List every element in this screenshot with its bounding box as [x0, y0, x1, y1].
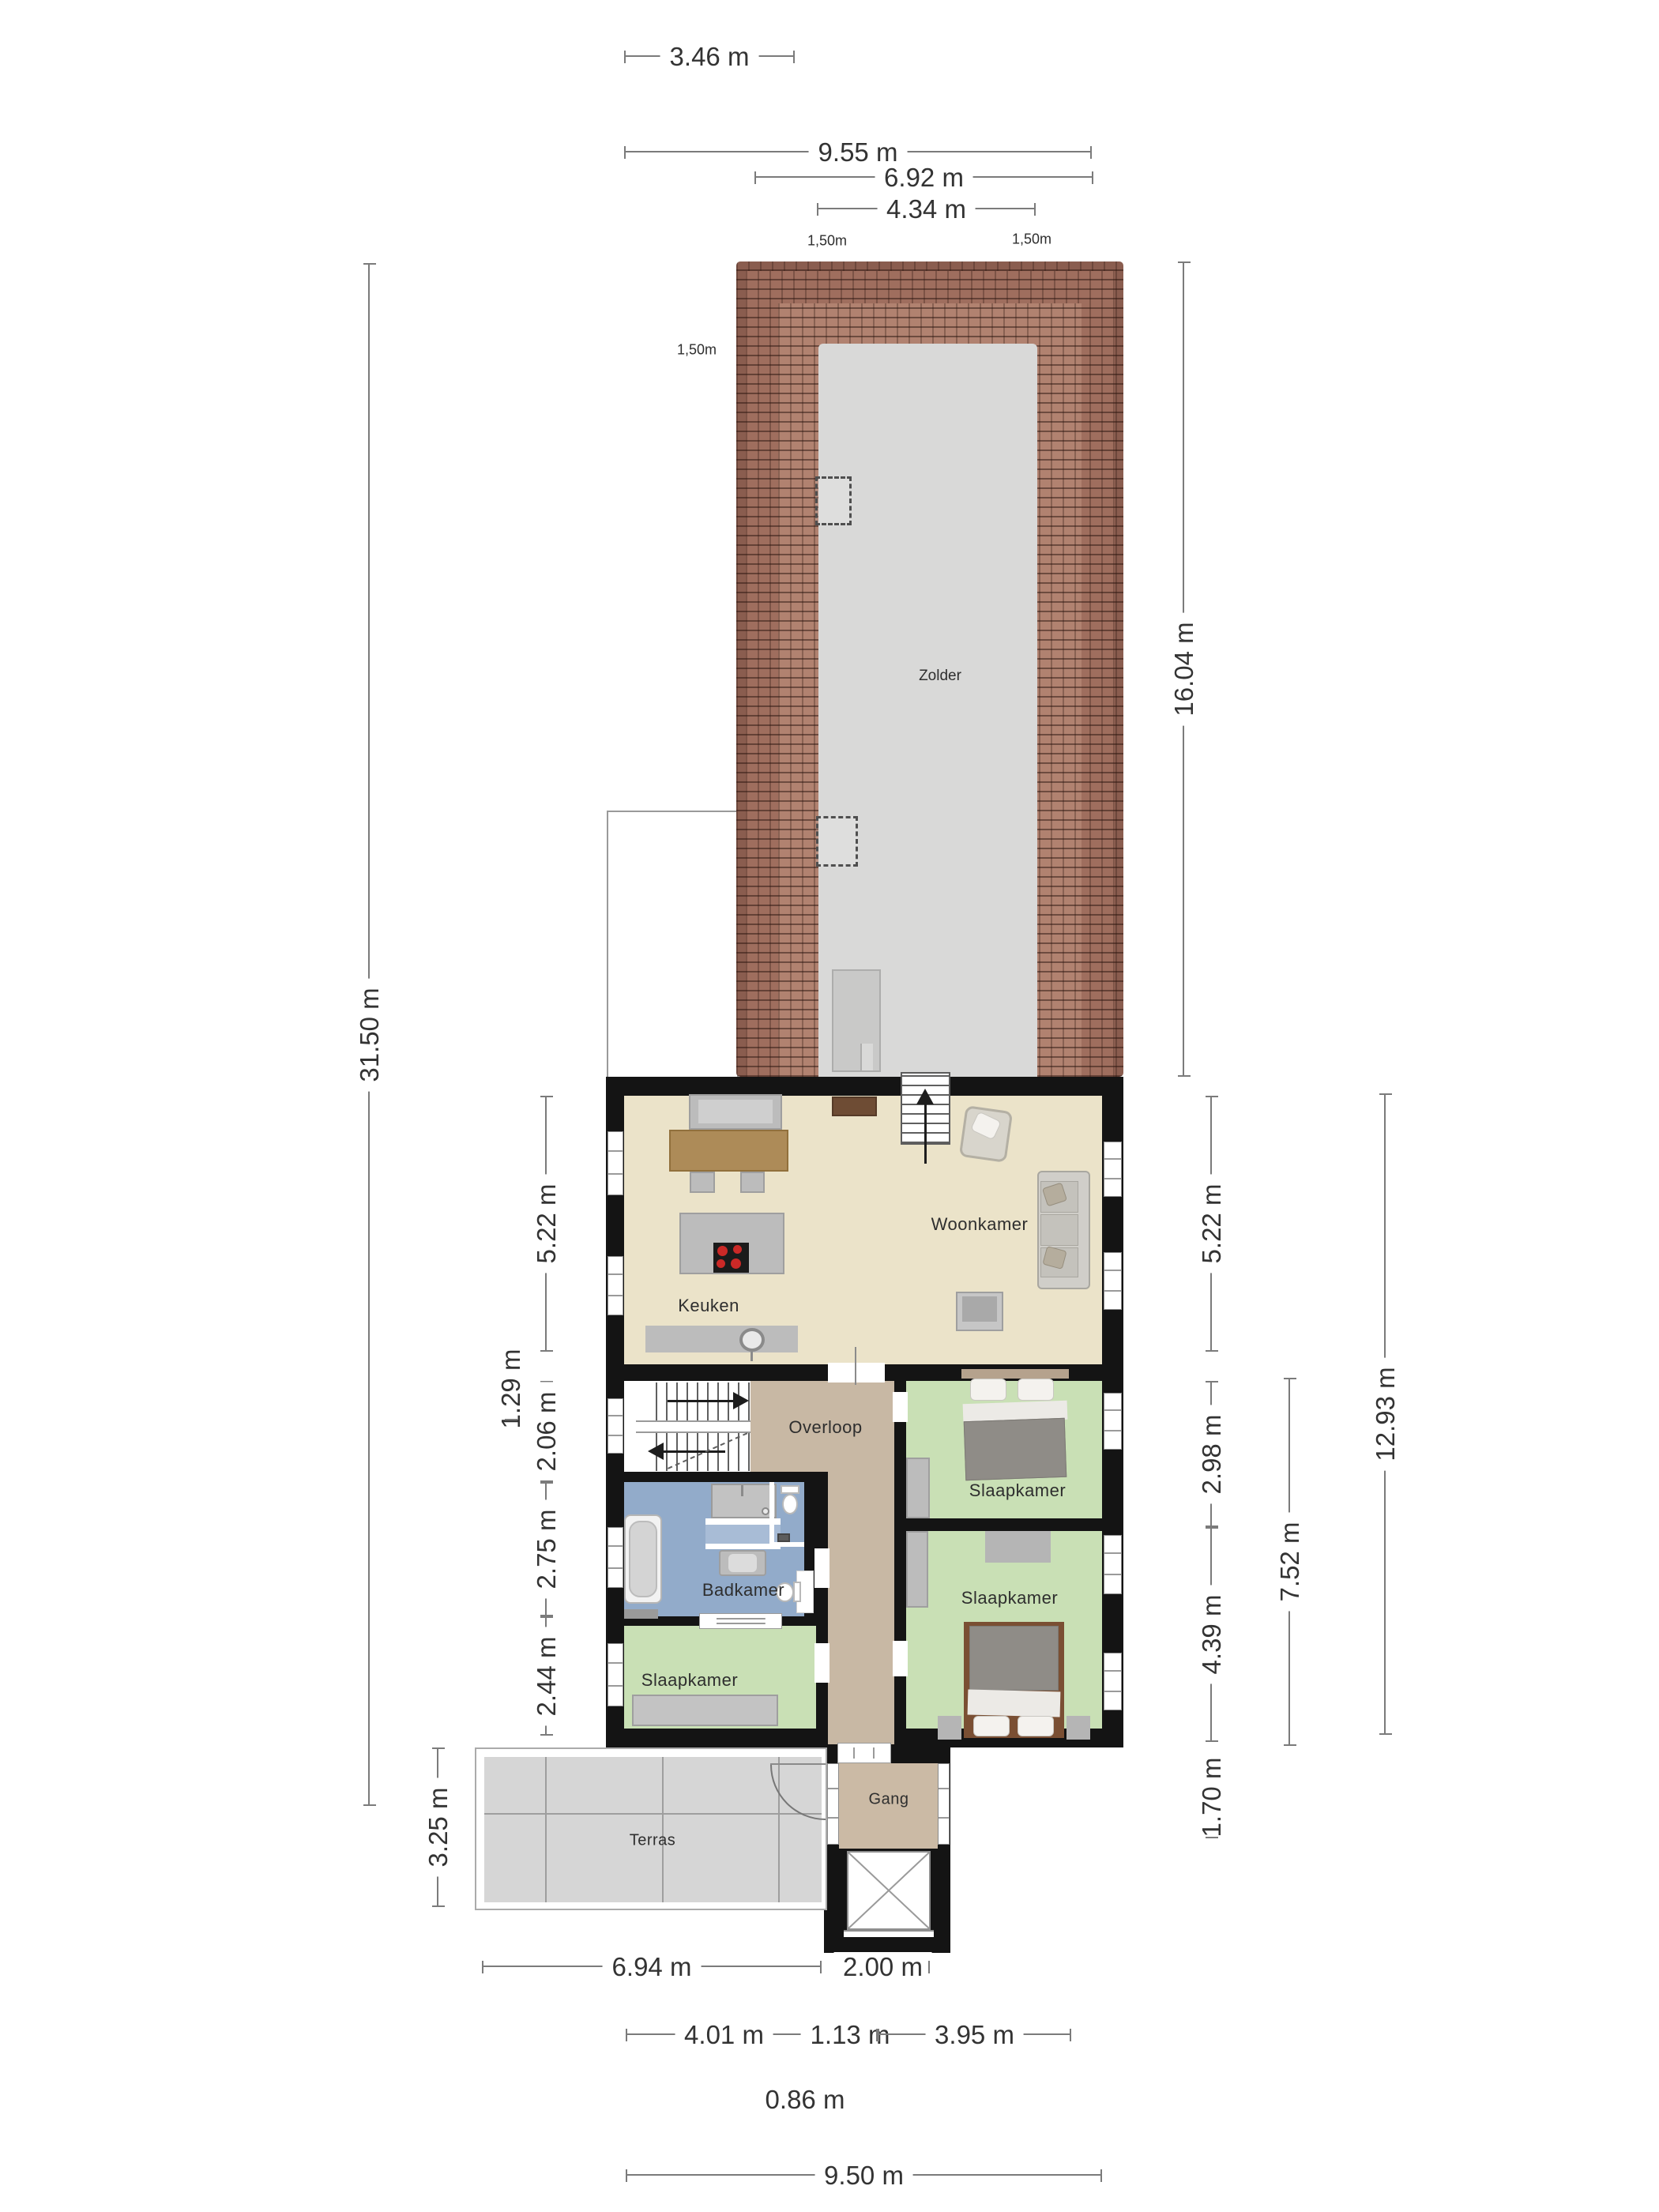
- dim-7-52: 7.52 m: [1288, 1378, 1290, 1746]
- dim-12-93: 12.93 m: [1384, 1093, 1386, 1735]
- dim-1-70: 1.70 m: [1210, 1755, 1212, 1838]
- dim-5-22-r: 5.22 m: [1210, 1096, 1212, 1352]
- roof-offset-top-left: 1,50m: [807, 233, 847, 250]
- floor-plan: Zolder: [0, 0, 1659, 2212]
- dim-2-98: 2.98 m: [1210, 1381, 1212, 1527]
- roof-offset-left: 1,50m: [677, 342, 717, 359]
- dim-4-39: 4.39 m: [1210, 1527, 1212, 1742]
- dim-9-50: 9.50 m: [626, 2174, 1102, 2176]
- dim-1-29: 1.29 m: [510, 1357, 511, 1420]
- roof-offset-top-right: 1,50m: [1012, 231, 1051, 248]
- dim-6-92: 6.92 m: [754, 176, 1093, 178]
- dim-3-25: 3.25 m: [437, 1747, 438, 1907]
- dim-4-01: 4.01 m: [626, 2033, 822, 2035]
- dim-2-06: 2.06 m: [545, 1381, 547, 1482]
- dim-3-46: 3.46 m: [624, 55, 795, 57]
- dim-4-34: 4.34 m: [817, 208, 1036, 209]
- dim-3-95: 3.95 m: [878, 2033, 1071, 2035]
- dim-1-13: 1.13 m: [822, 2033, 878, 2035]
- dim-5-22-l: 5.22 m: [545, 1096, 547, 1352]
- dim-9-55: 9.55 m: [624, 151, 1092, 152]
- dim-2-75: 2.75 m: [545, 1482, 547, 1616]
- dim-2-44: 2.44 m: [545, 1616, 547, 1736]
- dimension-annotations: 3.46 m9.55 m6.92 m4.34 m6.94 m2.00 m4.01…: [0, 0, 1659, 2212]
- dim-6-94: 6.94 m: [482, 1966, 822, 1967]
- dim-31-50: 31.50 m: [368, 263, 370, 1806]
- dim-2-00: 2.00 m: [836, 1966, 930, 1967]
- dim-16-04: 16.04 m: [1183, 261, 1184, 1077]
